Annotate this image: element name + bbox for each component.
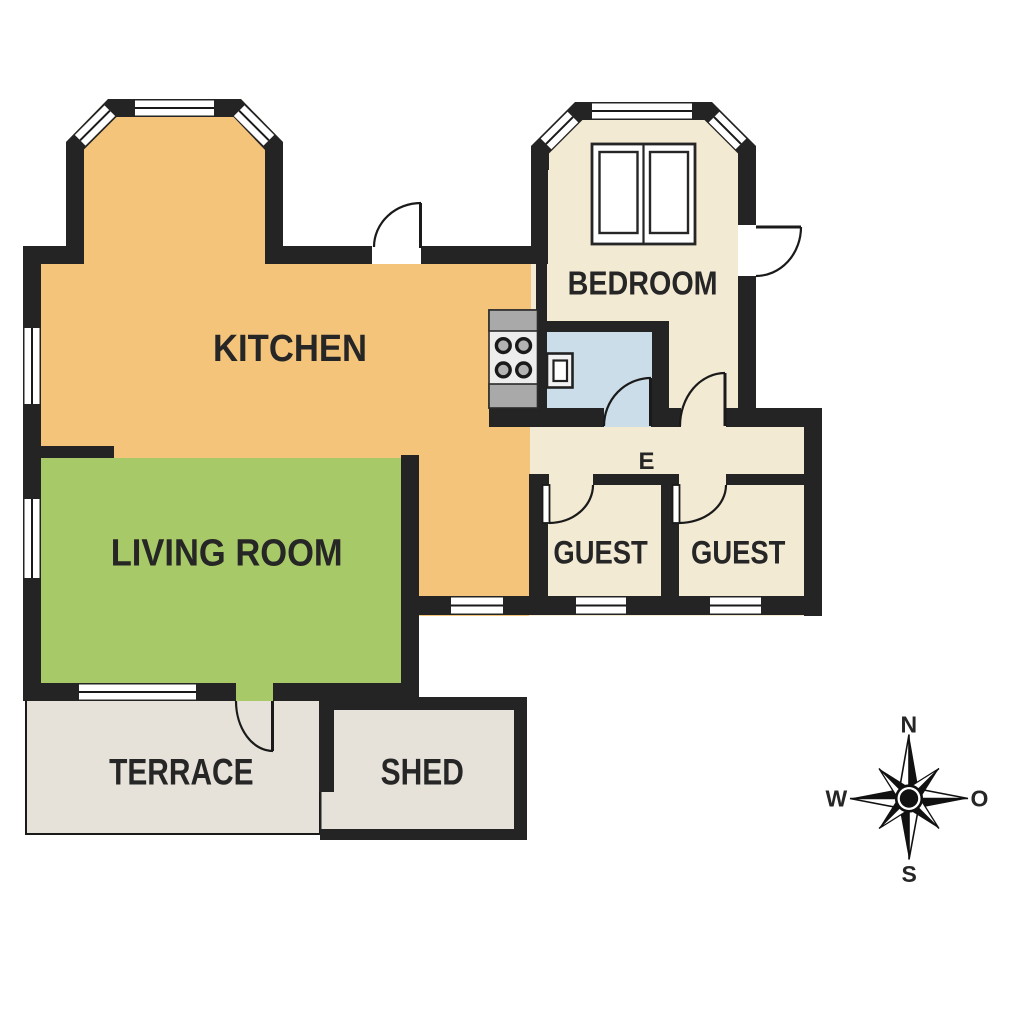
svg-text:S: S — [902, 861, 917, 887]
svg-text:O: O — [971, 786, 989, 812]
svg-text:W: W — [826, 786, 848, 812]
svg-text:N: N — [901, 711, 918, 737]
svg-text:GUEST: GUEST — [553, 535, 648, 571]
svg-text:E: E — [639, 448, 655, 475]
svg-text:KITCHEN: KITCHEN — [213, 328, 367, 370]
svg-text:SHED: SHED — [381, 751, 464, 793]
svg-text:BEDROOM: BEDROOM — [568, 265, 718, 302]
svg-text:TERRACE: TERRACE — [109, 751, 254, 793]
svg-text:LIVING ROOM: LIVING ROOM — [111, 533, 343, 575]
svg-text:GUEST: GUEST — [691, 535, 786, 571]
